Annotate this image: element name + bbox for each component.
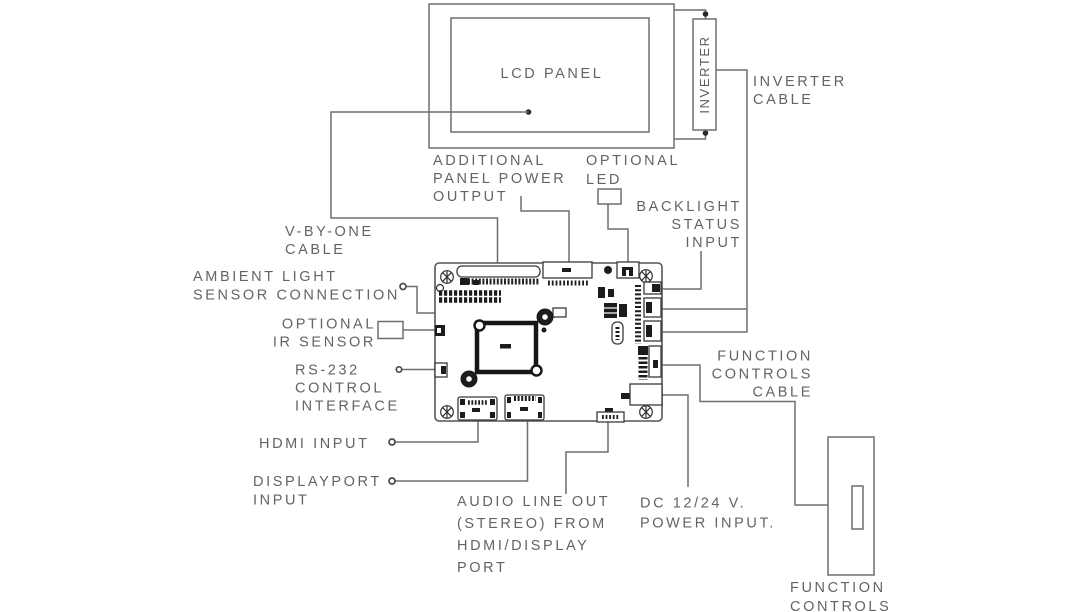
label-line: LED xyxy=(586,172,622,188)
function-controls-box xyxy=(828,437,874,575)
label-function-controls: FUNCTION CONTROLS xyxy=(790,580,891,612)
label-line: INPUT xyxy=(686,235,743,251)
controller-board xyxy=(435,262,662,422)
ambient-sensor-terminal xyxy=(400,284,406,290)
label-line: CONTROLS xyxy=(790,599,891,612)
function-controls-slot xyxy=(852,486,863,529)
inverter-bottom-dot xyxy=(703,130,709,136)
label-line: BACKLIGHT xyxy=(636,199,742,215)
displayport-wire xyxy=(395,421,528,481)
label-line: SENSOR CONNECTION xyxy=(193,288,400,304)
label-line: OPTIONAL xyxy=(586,153,680,169)
label-hdmi-input: HDMI INPUT xyxy=(259,436,370,452)
label-line: AUDIO LINE OUT xyxy=(457,494,610,510)
function-controls-unit xyxy=(828,437,874,575)
label-displayport-input: DISPLAYPORT INPUT xyxy=(253,474,382,509)
displayport-connector xyxy=(505,395,544,420)
optional-led-wire xyxy=(608,204,628,264)
inverter-bottom-wire xyxy=(674,130,706,139)
label-line: OPTIONAL xyxy=(282,317,376,333)
inverter-label: INVERTER xyxy=(697,35,712,113)
audio-wire xyxy=(566,421,608,494)
label-audio-line-out: AUDIO LINE OUT (STEREO) FROM HDMI/DISPLA… xyxy=(457,494,610,576)
label-line: FUNCTION xyxy=(717,349,813,365)
label-optional-ir-sensor: OPTIONAL IR SENSOR xyxy=(273,317,376,351)
displayport-terminal xyxy=(389,478,395,484)
rs232-connector-tab xyxy=(435,363,447,377)
backlight-status-wire xyxy=(662,251,701,289)
label-v-by-one-cable: V-BY-ONE CABLE xyxy=(285,224,374,258)
hdmi-connector xyxy=(458,397,497,420)
label-line: INPUT xyxy=(253,493,310,509)
label-line: DC 12/24 V. xyxy=(640,496,746,512)
diagram-canvas: LCD PANEL INVERTER INVERTER CABLE ADDITI… xyxy=(0,0,1080,612)
label-line: PANEL POWER xyxy=(433,171,566,187)
label-line: DISPLAYPORT xyxy=(253,474,382,490)
label-function-controls-cable: FUNCTION CONTROLS CABLE xyxy=(712,349,813,401)
ir-sensor-box xyxy=(378,322,403,339)
inverter-top-wire xyxy=(674,10,706,19)
label-line: CONTROLS xyxy=(712,367,813,383)
panel-power-wire xyxy=(521,196,569,264)
label-line: HDMI/DISPLAY xyxy=(457,538,589,554)
inverter: INVERTER xyxy=(674,10,716,139)
rs232-terminal xyxy=(396,367,401,372)
label-line: CABLE xyxy=(753,92,814,108)
label-line: V-BY-ONE xyxy=(285,224,374,240)
label-line: CABLE xyxy=(285,242,346,258)
lcd-panel: LCD PANEL xyxy=(429,4,674,148)
label-line: AMBIENT LIGHT xyxy=(193,269,338,285)
inverter-top-dot xyxy=(703,11,709,17)
label-line: STATUS xyxy=(671,217,742,233)
label-ambient-light-sensor: AMBIENT LIGHT SENSOR CONNECTION xyxy=(193,269,400,304)
label-optional-led: OPTIONAL LED xyxy=(586,153,680,188)
label-line: CABLE xyxy=(752,385,813,401)
lcd-panel-label: LCD PANEL xyxy=(501,66,604,82)
label-line: (STEREO) FROM xyxy=(457,516,607,532)
label-line: INTERFACE xyxy=(295,399,400,415)
v-by-one-connector xyxy=(457,266,540,285)
ir-connector-tab xyxy=(435,325,445,336)
label-line: RS-232 xyxy=(295,363,360,379)
ambient-sensor-wire xyxy=(406,287,435,314)
label-line: INVERTER xyxy=(753,74,847,90)
diagram-page: LCD PANEL INVERTER INVERTER CABLE ADDITI… xyxy=(0,0,1080,612)
hdmi-wire xyxy=(395,421,478,442)
label-line: CONTROL xyxy=(295,381,384,397)
label-line: IR SENSOR xyxy=(273,335,376,351)
label-line: PORT xyxy=(457,560,507,576)
dc-power-wire xyxy=(662,395,688,487)
label-line: POWER INPUT. xyxy=(640,516,776,532)
label-backlight-status-input: BACKLIGHT STATUS INPUT xyxy=(636,199,742,251)
label-rs232-control-interface: RS-232 CONTROL INTERFACE xyxy=(295,363,400,415)
label-dc-power-input: DC 12/24 V. POWER INPUT. xyxy=(640,496,776,532)
label-line: FUNCTION xyxy=(790,580,886,596)
label-inverter-cable: INVERTER CABLE xyxy=(753,74,847,108)
label-line: OUTPUT xyxy=(433,189,508,205)
optional-led-box xyxy=(598,189,621,204)
label-additional-panel-power-output: ADDITIONAL PANEL POWER OUTPUT xyxy=(433,153,566,205)
hdmi-terminal xyxy=(389,439,395,445)
label-line: ADDITIONAL xyxy=(433,153,546,169)
